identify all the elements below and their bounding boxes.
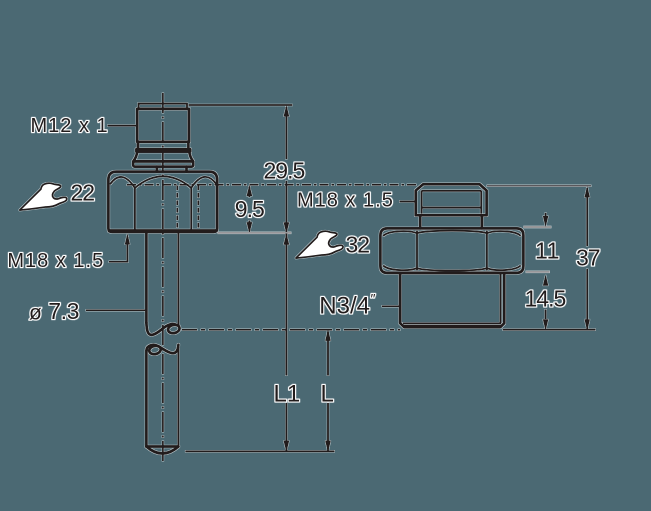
svg-text:N3/4″: N3/4″ <box>319 290 375 319</box>
svg-text:M18 x 1.5: M18 x 1.5 <box>7 250 104 272</box>
svg-text:9.5: 9.5 <box>235 196 264 222</box>
svg-text:L: L <box>321 380 334 407</box>
svg-text:22: 22 <box>71 180 95 206</box>
svg-text:M12 x 1: M12 x 1 <box>31 115 109 137</box>
svg-text:7.3: 7.3 <box>48 298 79 324</box>
svg-text:32: 32 <box>346 231 370 257</box>
svg-text:29.5: 29.5 <box>264 157 305 183</box>
svg-text:11: 11 <box>535 238 560 264</box>
svg-text:14.5: 14.5 <box>525 286 566 312</box>
svg-text:ø: ø <box>29 302 43 325</box>
svg-text:37: 37 <box>576 245 600 271</box>
svg-text:L1: L1 <box>274 380 301 407</box>
svg-text:M18 x 1.5: M18 x 1.5 <box>297 189 394 211</box>
